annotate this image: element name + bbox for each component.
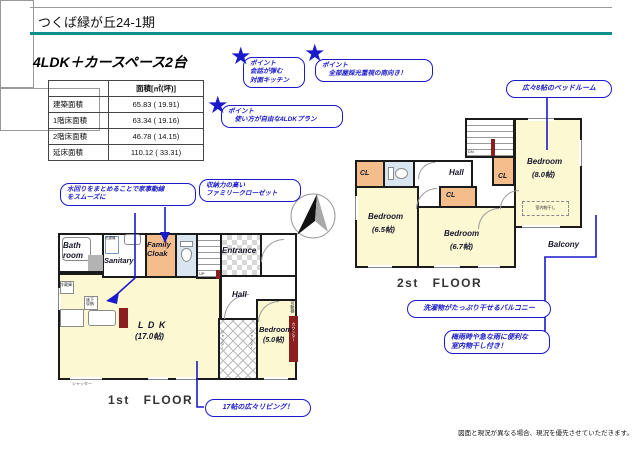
row-label: 1階床面積 [49,113,109,129]
stove-icon [60,309,84,327]
toilet-bowl-icon [395,168,408,179]
row-label: 2階床面積 [49,129,109,145]
table-row: 延床面積 110.12 ( 33.31) [49,145,204,161]
floor1-label: 1st FLOOR [108,393,193,407]
room-label-family-cloak: Family Cloak [147,240,171,258]
row-value: 110.12 ( 33.31) [109,145,204,161]
plan-title: 4LDK＋カースペース2台 [33,52,187,72]
area-table: 面積[㎡(坪)] 建築面積 65.83 ( 19.91) 1階床面積 63.34… [48,80,204,161]
window [478,265,500,270]
vanity-icon [124,234,141,245]
room-label-hall-1f: Hall [232,290,247,300]
callout-living: 17帖の広々リビング！ [205,399,311,417]
door-arc [500,190,519,209]
table-row: 建築面積 65.83 ( 19.91) [49,97,204,113]
counter-label: カウンター [291,322,295,342]
room-label-bedroom-8: Bedroom [527,157,562,167]
sink-icon [88,310,116,326]
table-row: 2階床面積 46.78 ( 14.15) [49,129,204,145]
window [148,377,168,382]
window [368,265,392,270]
closet-label: CL [360,170,369,178]
fridge-label: 冷蔵庫 [60,283,72,287]
callout-family-closet: 収納力の高い ファミリークローゼット [199,179,301,202]
window [522,225,560,230]
header-teal-rule [30,32,612,35]
callout-mizumawari: 水回りをまとめることで家事動線 をスムーズに [60,183,196,206]
star-icon: ★ [304,42,326,66]
room-label-hall-2f: Hall [449,168,464,178]
window [353,196,358,220]
bath-floor [88,255,103,271]
page-title: つくば緑が丘24-1期 [38,12,155,31]
kitchen-counter-edge [119,308,128,328]
callout-point-4ldk: ポイント 使い方が自由な4LDKプラン [221,105,343,128]
room-label-sanitary: Sanitary [104,256,134,265]
header-top-rule [30,7,612,8]
balcony-strip [0,0,34,88]
star-icon: ★ [230,45,252,69]
balcony-label: Balcony [548,240,579,250]
washer-label: 洗濯機 [105,237,116,241]
room-size-bedroom-8: (8.0帖) [532,170,555,179]
floor2-label: 2st FLOOR [397,276,482,290]
closet-label: CL [498,173,507,181]
indoor-drying-box: 室内物干し [522,201,569,216]
room-label-bedroom-67: Bedroom [444,229,479,239]
room-label-entrance: Entrance [222,246,256,256]
callout-point-south: ポイント 全部屋採光重視の南向き！ [315,59,433,82]
row-value: 63.34 ( 19.16) [109,113,204,129]
shutter-label: シャッター [72,382,92,386]
window [434,265,460,270]
closet-label: CL [446,192,455,200]
callout-balcony: 洗濯物がたっぷり干せるバルコニー [407,300,551,318]
area-table-corner-cell [49,81,109,97]
flyer-page: つくば緑が丘24-1期 4LDK＋カースペース2台 面積[㎡(坪)] 建築面積 … [0,0,640,453]
indoor-drying-label: 室内物干し [536,206,556,210]
shelf-label: 可動棚 [290,301,294,313]
room-size-ldk: (17.0帖) [135,332,164,342]
up-label: UP [199,272,205,276]
window [579,140,584,166]
toilet-tank-icon [180,241,193,247]
window [528,116,554,121]
room-size-bedroom-67: (6.7帖) [450,242,473,251]
room-label-bedroom-65: Bedroom [368,212,403,222]
closet-2f-stairs [492,156,515,186]
handrail-2f [491,139,495,156]
handrail-1f [216,270,220,279]
callout-point-kitchen: ポイント 会話が弾む 対面キッチン [243,57,305,88]
row-value: 65.83 ( 19.91) [109,97,204,113]
dn-label: DN [468,150,474,154]
disclaimer-text: 図面と現況が異なる場合、現況を優先させていただきます。 [458,427,633,437]
star-icon: ★ [207,94,229,118]
floor-storage-label: 床下 収納 [86,298,94,307]
room-size-bedroom-65: (6.5帖) [372,225,395,234]
callout-monohoshi: 梅雨時や急な雨に便利な 室内物干し付き！ [444,330,550,354]
room-size-bedroom-1f: (5.0帖) [263,337,284,345]
window [176,377,196,382]
closet-2f-mid [439,186,477,208]
area-table-header: 面積[㎡(坪)] [109,81,204,97]
room-label-bath: Bath room [63,241,83,260]
shutter-label: シャッター [220,330,224,350]
window [264,377,288,382]
row-label: 延床面積 [49,145,109,161]
room-label-bedroom-1f: Bedroom [259,325,292,334]
callout-bedroom8: 広々8帖のベッドルーム [506,80,612,98]
row-label: 建築面積 [49,97,109,113]
room-label-ldk: L D K [138,320,166,331]
toilet-tank-icon [388,167,394,180]
table-row: 1階床面積 63.34 ( 19.16) [49,113,204,129]
row-value: 46.78 ( 14.15) [109,129,204,145]
shutter-label: シャッター [249,330,253,350]
table-row: 面積[㎡(坪)] [49,81,204,97]
